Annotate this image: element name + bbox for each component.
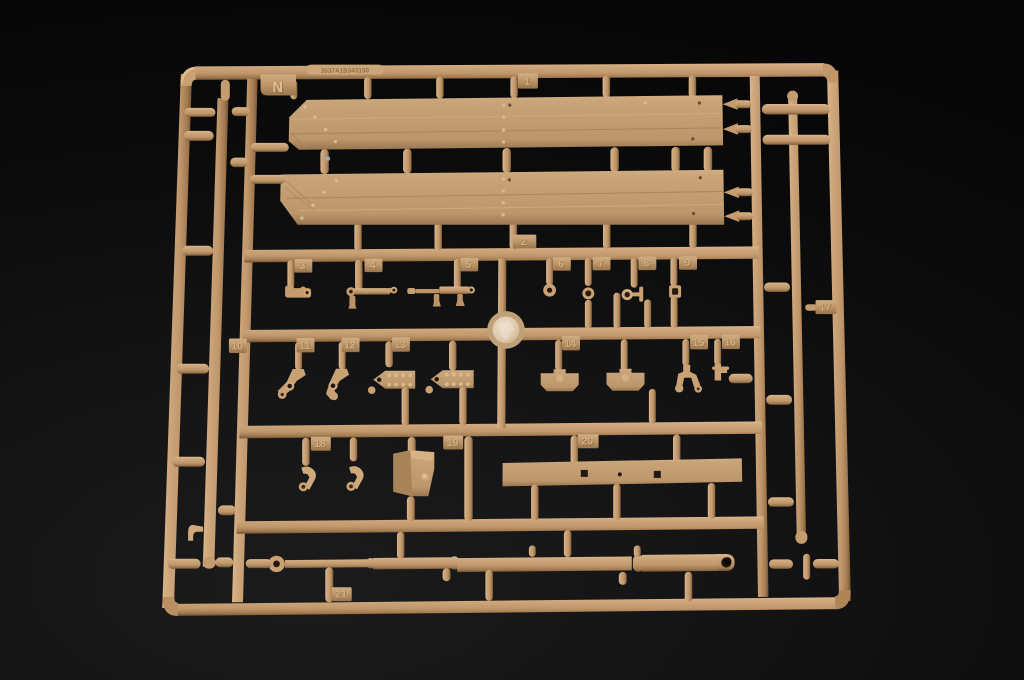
svg-text:5: 5 <box>466 259 472 271</box>
svg-text:4: 4 <box>370 260 376 272</box>
svg-text:16: 16 <box>724 337 736 349</box>
svg-text:3537A1B343150: 3537A1B343150 <box>321 67 370 74</box>
svg-text:3: 3 <box>300 260 306 272</box>
svg-text:6: 6 <box>558 258 564 270</box>
svg-text:9: 9 <box>684 257 690 269</box>
svg-text:13: 13 <box>394 339 406 351</box>
svg-text:11: 11 <box>299 340 310 352</box>
svg-text:N: N <box>272 80 282 96</box>
svg-text:17: 17 <box>820 302 832 314</box>
svg-text:2: 2 <box>521 236 527 248</box>
svg-text:7: 7 <box>598 258 604 270</box>
svg-text:18: 18 <box>314 438 326 450</box>
svg-text:8: 8 <box>644 258 650 270</box>
svg-text:1: 1 <box>524 76 530 88</box>
svg-text:21: 21 <box>335 589 347 601</box>
svg-text:19: 19 <box>447 437 459 449</box>
svg-text:10: 10 <box>231 340 243 352</box>
svg-text:14: 14 <box>565 338 577 350</box>
svg-text:12: 12 <box>344 340 356 352</box>
svg-text:20: 20 <box>582 436 594 448</box>
svg-text:15: 15 <box>693 337 705 349</box>
